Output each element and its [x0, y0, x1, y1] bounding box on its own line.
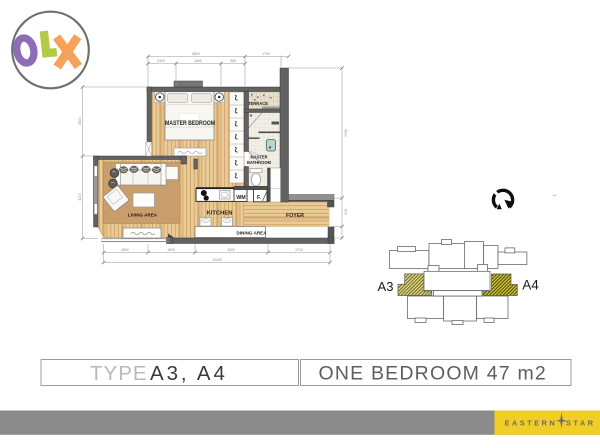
svg-text:TERRACE: TERRACE [248, 101, 268, 106]
svg-text:TYPE: TYPE [90, 362, 148, 385]
svg-text:950: 950 [230, 59, 236, 63]
svg-text:2400: 2400 [157, 59, 165, 63]
svg-text:4100: 4100 [78, 193, 82, 201]
svg-text:4300: 4300 [227, 248, 235, 252]
svg-text:LIVING AREA: LIVING AREA [128, 212, 157, 218]
svg-text:10200: 10200 [212, 258, 222, 262]
svg-text:BATHROOM: BATHROOM [247, 160, 271, 165]
svg-text:ONE BEDROOM 47 m2: ONE BEDROOM 47 m2 [319, 363, 547, 385]
svg-text:1500: 1500 [167, 248, 175, 252]
svg-text:A3: A3 [378, 279, 394, 294]
svg-text:MASTER BEDROOM: MASTER BEDROOM [165, 120, 215, 127]
svg-text:WM: WM [236, 195, 246, 201]
svg-text:4300: 4300 [344, 129, 348, 137]
svg-text:5800: 5800 [192, 52, 200, 56]
svg-text:2710: 2710 [295, 248, 303, 252]
svg-text:3500: 3500 [78, 117, 82, 125]
svg-text:KITCHEN: KITCHEN [207, 210, 233, 216]
svg-text:EASTERN: EASTERN [505, 419, 558, 428]
svg-text:F.: F. [257, 195, 262, 201]
svg-text:FOYER: FOYER [286, 213, 304, 219]
svg-text:DINING AREA: DINING AREA [237, 231, 267, 237]
svg-text:A3, A4: A3, A4 [150, 362, 228, 385]
svg-text:800: 800 [344, 209, 348, 215]
svg-text:STAR: STAR [566, 419, 595, 428]
svg-text:1700: 1700 [262, 52, 270, 56]
svg-text:1800: 1800 [194, 59, 202, 63]
svg-text:4500: 4500 [121, 248, 129, 252]
svg-text:A4: A4 [522, 278, 539, 293]
